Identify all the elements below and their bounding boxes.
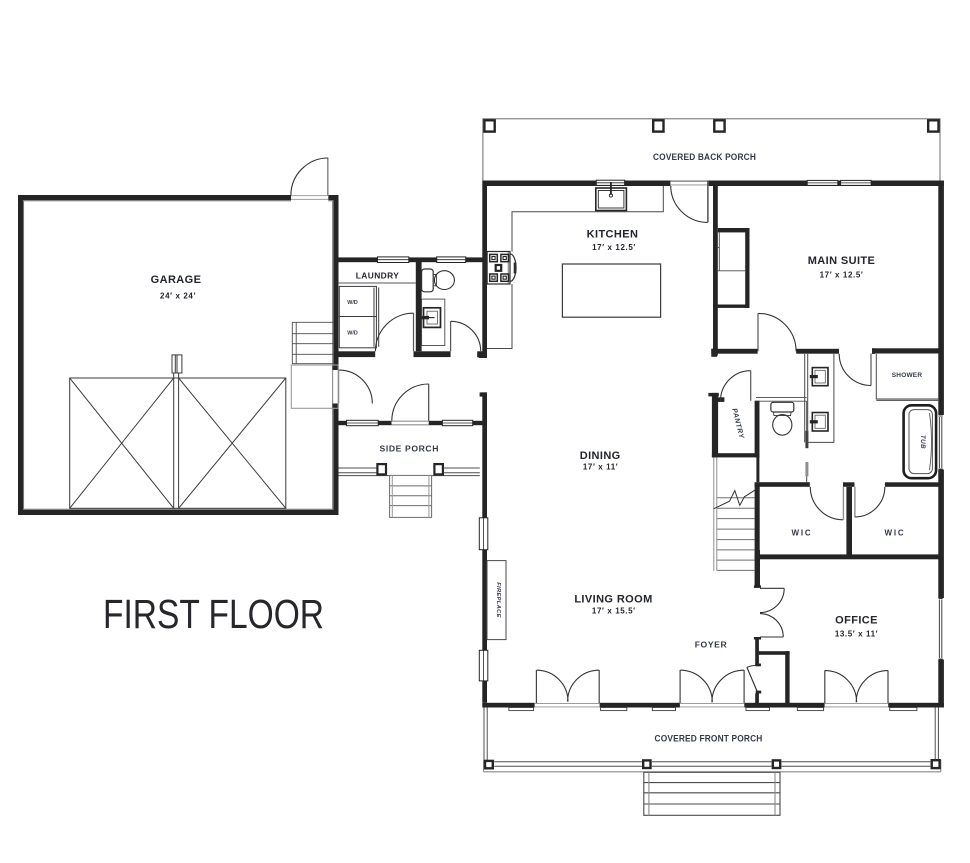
svg-text:FOYER: FOYER	[695, 639, 728, 649]
svg-text:OFFICE: OFFICE	[835, 615, 878, 627]
svg-text:COVERED FRONT PORCH: COVERED FRONT PORCH	[655, 733, 763, 744]
svg-text:FIREPLACE: FIREPLACE	[495, 582, 501, 618]
svg-text:LAUNDRY: LAUNDRY	[356, 271, 399, 281]
svg-text:SHOWER: SHOWER	[892, 372, 923, 379]
svg-text:17′ x 15.5′: 17′ x 15.5′	[592, 607, 636, 616]
svg-text:KITCHEN: KITCHEN	[587, 229, 639, 241]
svg-text:MAIN SUITE: MAIN SUITE	[808, 255, 876, 267]
svg-text:WIC: WIC	[885, 529, 906, 538]
svg-text:GARAGE: GARAGE	[151, 274, 202, 286]
svg-text:WIC: WIC	[792, 529, 813, 538]
svg-text:13.5′ x 11′: 13.5′ x 11′	[835, 629, 878, 638]
svg-text:24′ x 24′: 24′ x 24′	[160, 291, 196, 300]
svg-text:FIRST FLOOR: FIRST FLOOR	[103, 591, 324, 637]
svg-text:W/D: W/D	[347, 300, 358, 306]
svg-text:LIVING ROOM: LIVING ROOM	[574, 593, 652, 605]
svg-text:TUB: TUB	[919, 435, 926, 449]
svg-text:DINING: DINING	[580, 450, 621, 462]
svg-text:17′ x 12.5′: 17′ x 12.5′	[592, 243, 636, 252]
svg-text:SIDE PORCH: SIDE PORCH	[380, 444, 439, 454]
svg-text:COVERED BACK PORCH: COVERED BACK PORCH	[653, 152, 756, 163]
svg-text:W/D: W/D	[347, 331, 358, 337]
svg-text:17′ x 12.5′: 17′ x 12.5′	[820, 270, 864, 279]
svg-text:17′ x 11′: 17′ x 11′	[583, 463, 619, 472]
